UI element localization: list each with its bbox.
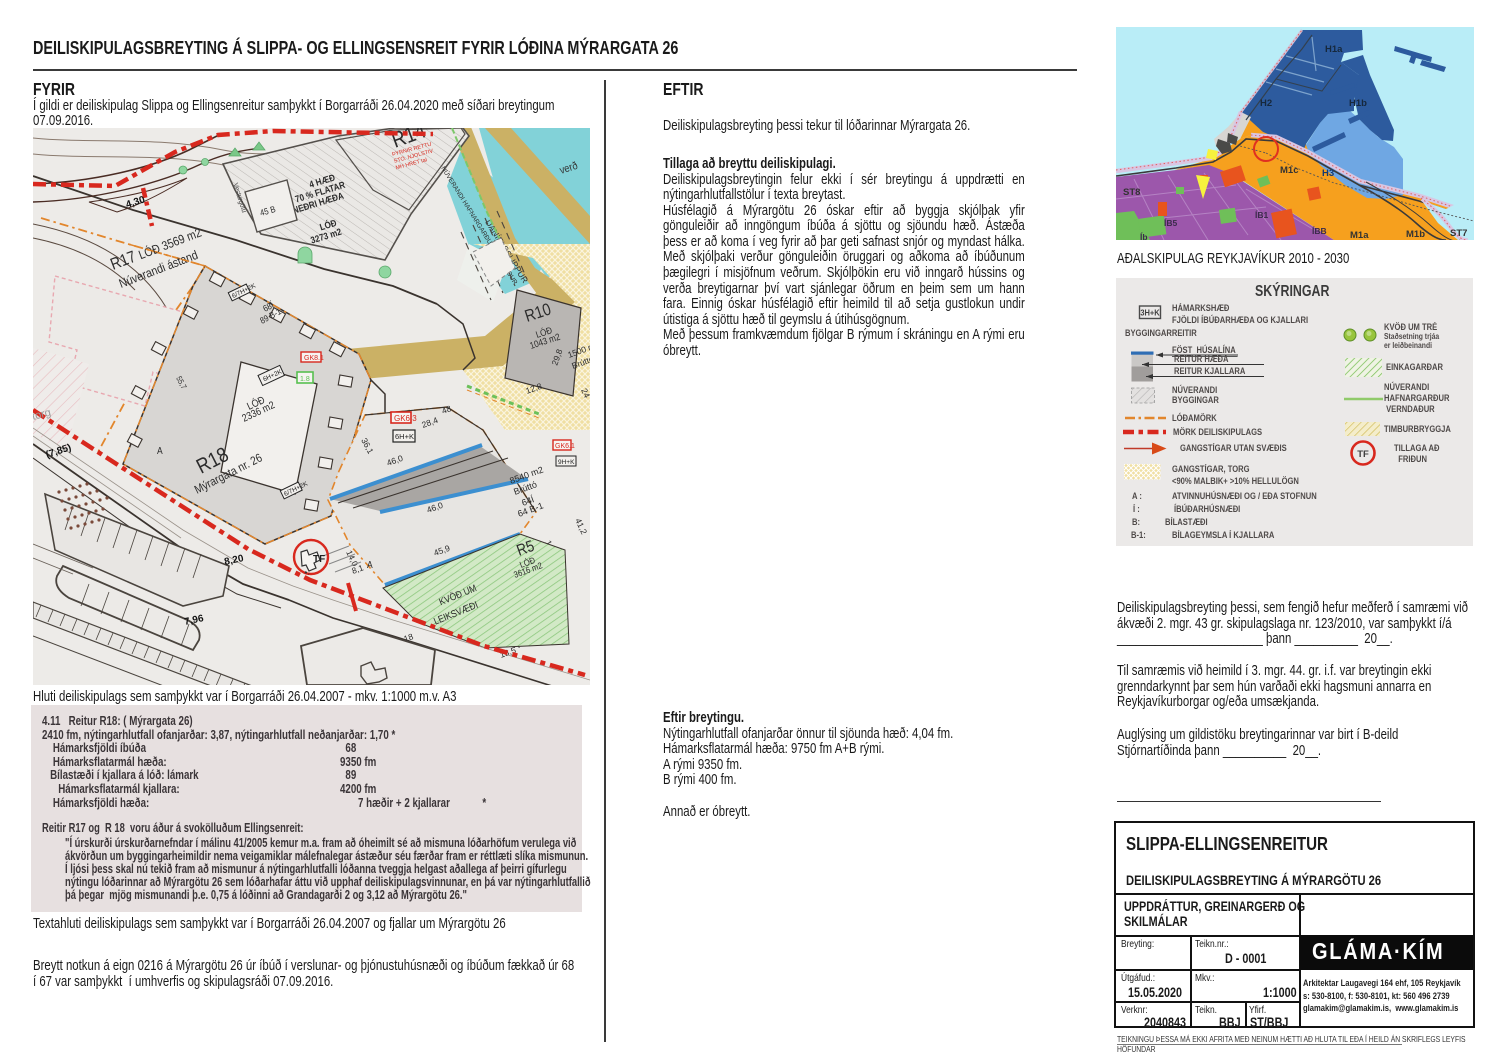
svg-text:TF: TF — [1357, 449, 1369, 460]
svg-text:A: A — [367, 559, 373, 570]
svg-text:ÍB1: ÍB1 — [1255, 210, 1269, 220]
svg-text:H3: H3 — [1322, 168, 1334, 179]
svg-text:GK6.3: GK6.3 — [394, 414, 417, 423]
svg-text:GK6.1: GK6.1 — [555, 443, 575, 450]
svg-text:ST7: ST7 — [1450, 228, 1467, 239]
svg-text:ÍB5: ÍB5 — [1164, 218, 1178, 228]
svg-text:H1a: H1a — [1325, 44, 1343, 55]
svg-text:A: A — [157, 445, 163, 456]
svg-text:Íb: Íb — [1140, 232, 1148, 240]
svg-text:1.8: 1.8 — [300, 376, 310, 383]
svg-text:GK8.1: GK8.1 — [304, 355, 324, 362]
svg-text:ÍBB: ÍBB — [1312, 226, 1327, 236]
svg-text:M1c: M1c — [1280, 165, 1298, 176]
svg-text:6H+K: 6H+K — [395, 432, 414, 441]
svg-text:H2: H2 — [1260, 98, 1272, 109]
svg-text:M1a: M1a — [1350, 230, 1369, 240]
svg-text:M1b: M1b — [1406, 229, 1425, 240]
svg-text:H1b: H1b — [1349, 98, 1367, 109]
svg-text:9H+K: 9H+K — [558, 459, 575, 466]
svg-text:3H+K: 3H+K — [1140, 308, 1160, 318]
svg-text:TF: TF — [313, 554, 325, 565]
svg-text:ST8: ST8 — [1123, 187, 1140, 198]
